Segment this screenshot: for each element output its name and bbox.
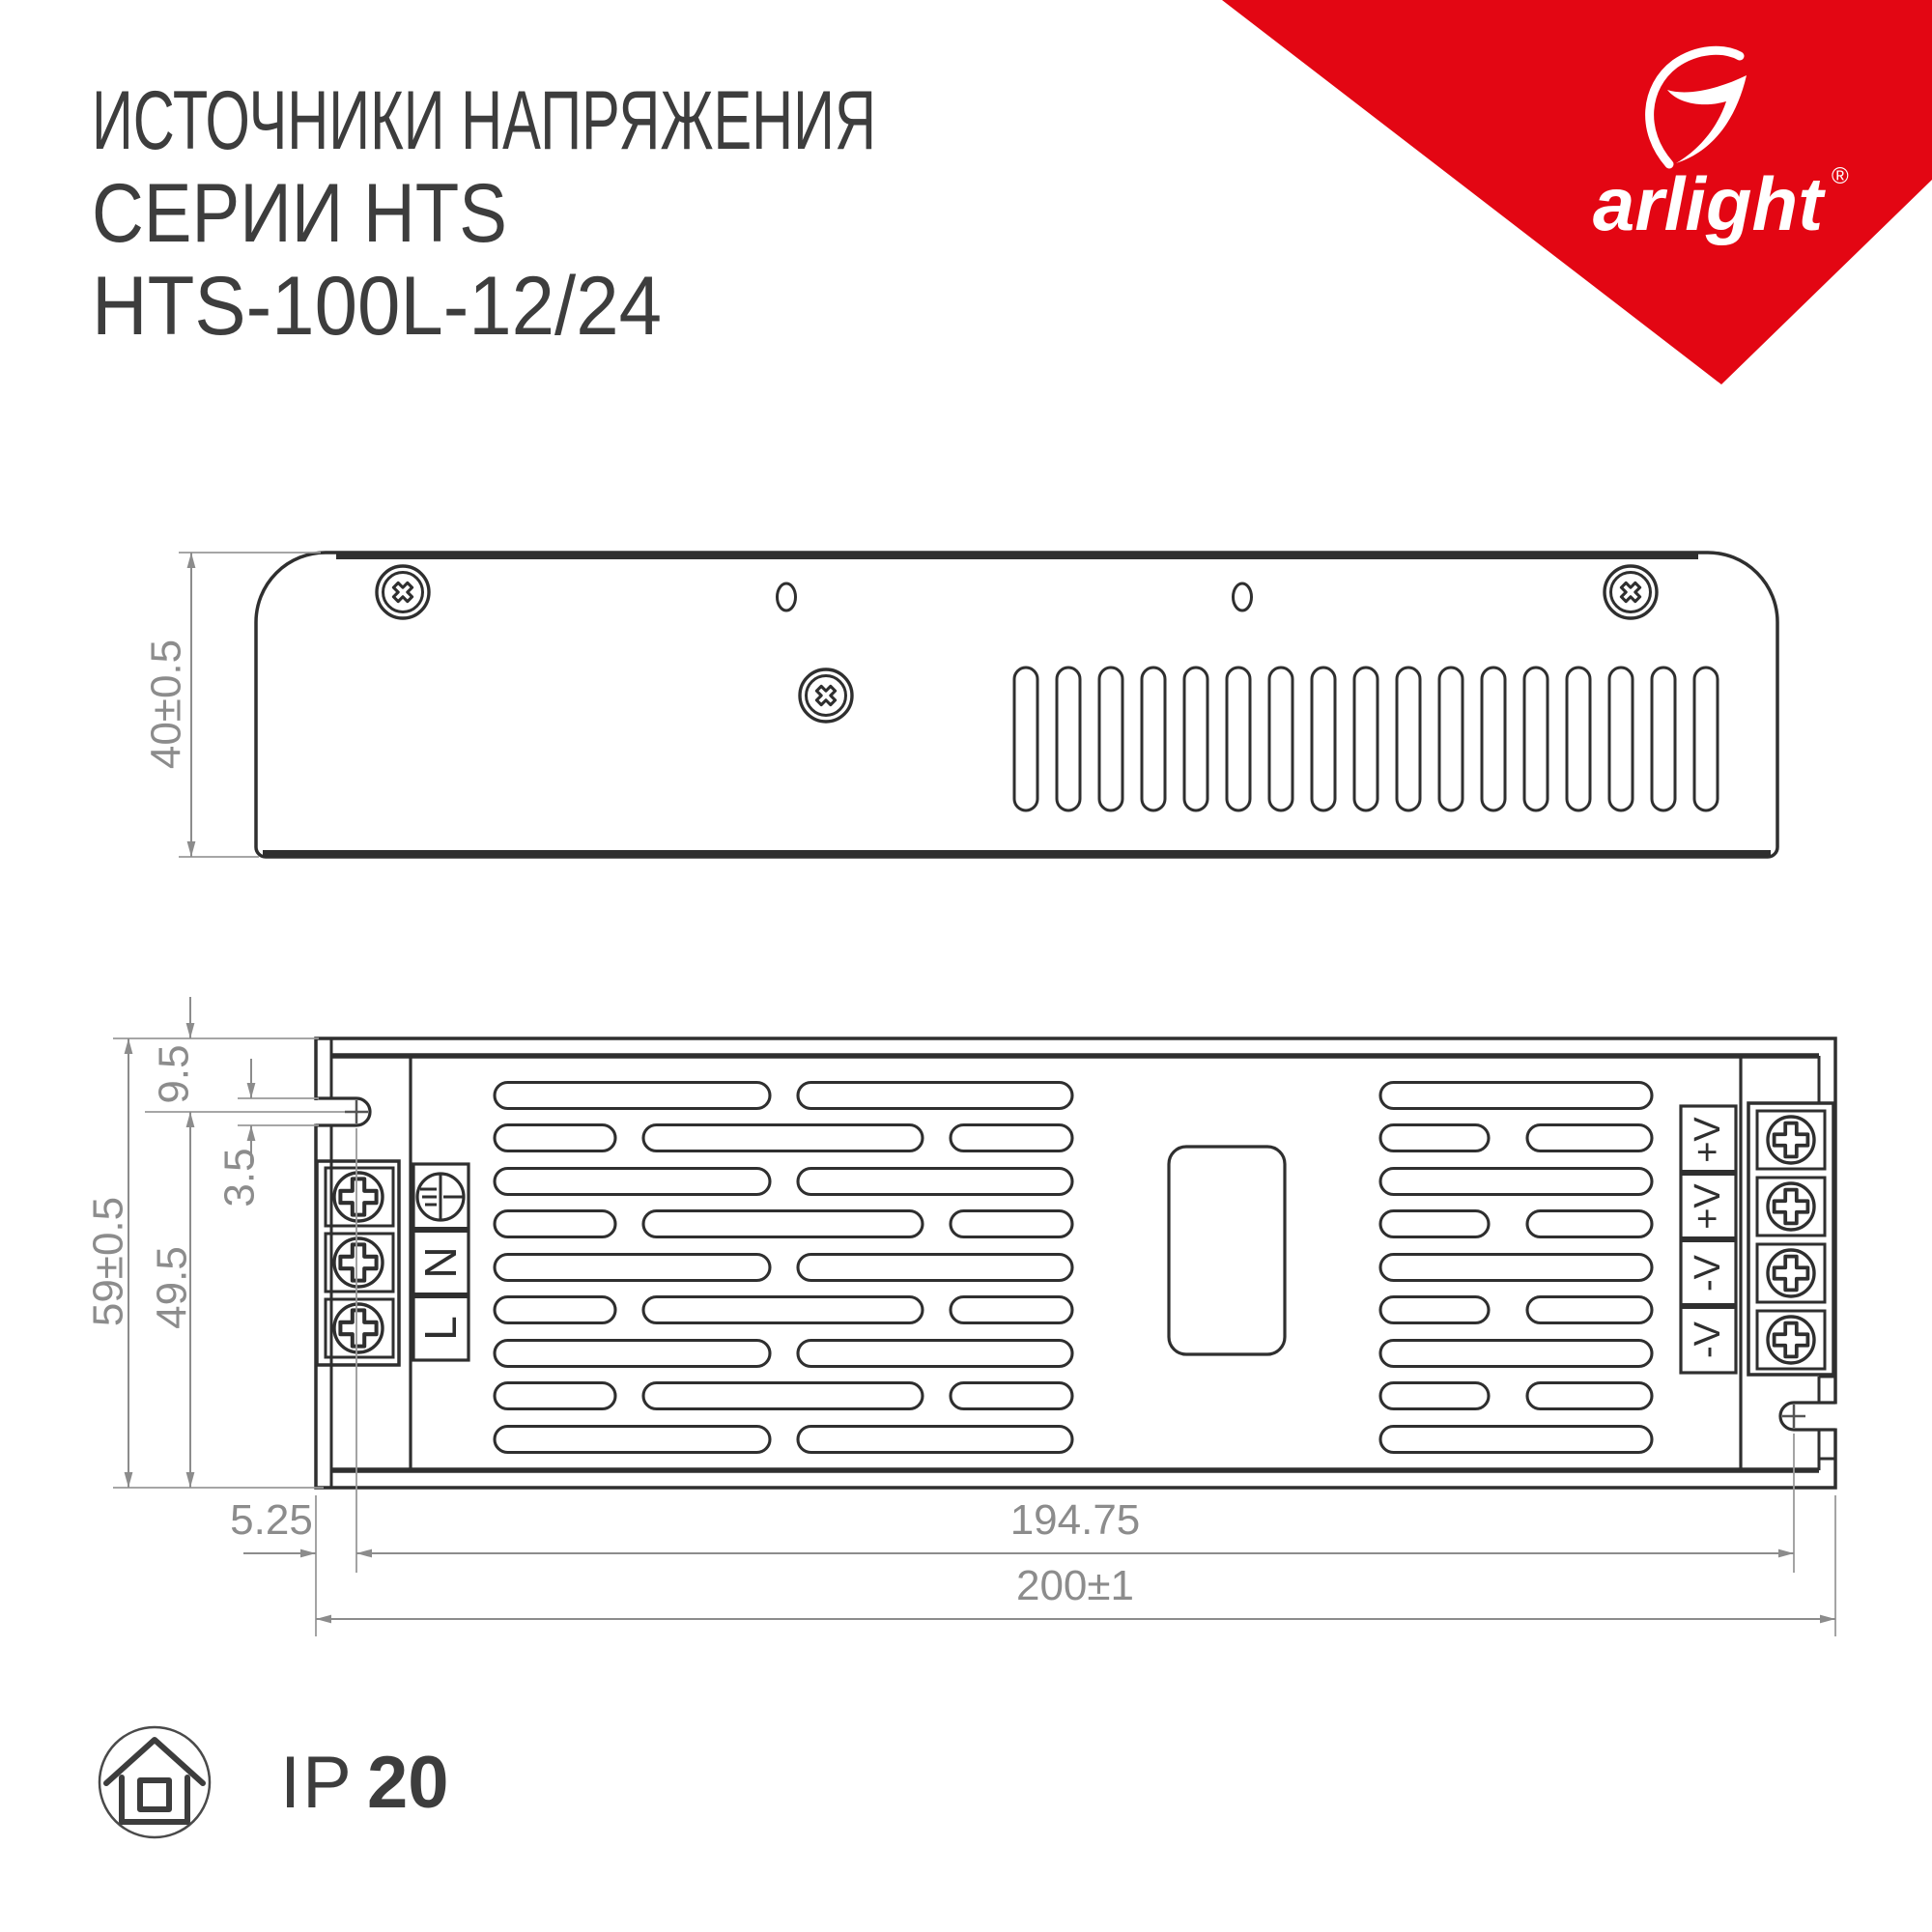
- vent-slot: [1354, 668, 1378, 810]
- top-view-screws: [377, 566, 1657, 722]
- product-label-area: [1169, 1147, 1285, 1354]
- terminal-label-l: L: [415, 1316, 466, 1341]
- vent-slot: [495, 1125, 615, 1151]
- terminal-screw-icon: [334, 1173, 383, 1221]
- top-view: 40±0.5: [143, 553, 1778, 857]
- vent-slot: [643, 1297, 923, 1323]
- vent-slot: [1380, 1125, 1489, 1151]
- brand-wordmark: arlight: [1593, 161, 1826, 246]
- terminal-label-plus-v: +V: [1688, 1117, 1728, 1163]
- terminal-label-minus-v: -V: [1688, 1254, 1728, 1292]
- vent-slot: [643, 1211, 923, 1237]
- title-line-1: ИСТОЧНИКИ НАПРЯЖЕНИЯ: [92, 74, 876, 167]
- vent-slot: [495, 1341, 770, 1367]
- vent-slot: [1380, 1297, 1489, 1323]
- vent-slot: [495, 1255, 770, 1281]
- dim-label-9-5: 9.5: [151, 1044, 198, 1103]
- vent-slot: [1142, 668, 1165, 810]
- vent-slot: [1652, 668, 1675, 810]
- screw-cross-icon: [1605, 566, 1657, 618]
- screw-plus-slot: [1775, 1323, 1808, 1357]
- brand-corner: arlight ®: [1222, 0, 1932, 384]
- vent-slot: [951, 1383, 1072, 1409]
- dim-label-59: 59±0.5: [85, 1197, 132, 1326]
- vent-slot: [1694, 668, 1718, 810]
- title-line-3: HTS-100L-12/24: [92, 260, 662, 353]
- terminal-screw-icon: [1768, 1317, 1814, 1363]
- vent-slot: [643, 1383, 923, 1409]
- terminal-label-n: N: [415, 1246, 466, 1278]
- vent-slot: [1527, 1211, 1652, 1237]
- terminal-screw-icon: [1768, 1117, 1814, 1163]
- ground-terminal-icon: [417, 1174, 464, 1220]
- vent-slot: [798, 1341, 1072, 1367]
- vent-slot: [1380, 1427, 1652, 1453]
- vent-slot: [1527, 1383, 1652, 1409]
- dim-label-49-5: 49.5: [149, 1246, 196, 1329]
- mount-hole-icon: [1234, 583, 1252, 611]
- vent-slot: [1380, 1083, 1652, 1109]
- vent-slot: [495, 1169, 770, 1195]
- screw-plus-slot: [1775, 1257, 1808, 1291]
- vent-slot: [1609, 668, 1633, 810]
- screw-plus-slot: [1775, 1123, 1808, 1157]
- dim-label-194-75: 194.75: [1010, 1496, 1141, 1544]
- vent-slot: [1524, 668, 1548, 810]
- vent-slot: [495, 1083, 770, 1109]
- screw-cross-icon: [377, 566, 429, 618]
- vent-slot: [1184, 668, 1207, 810]
- dim-label-40: 40±0.5: [143, 639, 190, 769]
- input-terminal-block: [317, 1161, 399, 1365]
- vent-slot: [643, 1125, 923, 1151]
- vent-slot: [951, 1211, 1072, 1237]
- left-keyhole-cross: [345, 1100, 368, 1123]
- dim-label-200: 200±1: [1016, 1562, 1134, 1609]
- indoor-house-icon: [106, 1740, 203, 1822]
- vent-slot: [1312, 668, 1335, 810]
- screw-plus-slot: [340, 1310, 376, 1346]
- vent-slot: [495, 1297, 615, 1323]
- dim-label-3-5: 3.5: [216, 1148, 264, 1207]
- vent-slot: [798, 1169, 1072, 1195]
- screw-x-slot: [812, 682, 840, 710]
- mount-hole-icon: [778, 583, 796, 611]
- output-terminal-block: [1748, 1103, 1833, 1375]
- screw-x-slot: [1617, 579, 1645, 607]
- screw-plus-slot: [1775, 1190, 1808, 1224]
- top-view-vent-slots: [1014, 668, 1718, 810]
- vent-slot: [1057, 668, 1080, 810]
- terminal-label-minus-v: -V: [1688, 1321, 1728, 1358]
- dim-top-view-height: 40±0.5: [143, 553, 322, 857]
- terminal-screw-icon: [334, 1304, 383, 1352]
- brand-red-triangle: [1222, 0, 1932, 384]
- vent-slot: [1380, 1211, 1489, 1237]
- vent-slot: [1397, 668, 1420, 810]
- datasheet-page: ИСТОЧНИКИ НАПРЯЖЕНИЯ СЕРИИ HTS HTS-100L-…: [0, 0, 1932, 1932]
- front-vent-slots: [495, 1083, 1652, 1453]
- vent-slot: [1014, 668, 1037, 810]
- vent-slot: [1482, 668, 1505, 810]
- vent-slot: [495, 1383, 615, 1409]
- screw-x-slot: [389, 579, 417, 607]
- slot-opening-mask: [1833, 1405, 1839, 1429]
- product-drawing-canvas: ИСТОЧНИКИ НАПРЯЖЕНИЯ СЕРИИ HTS HTS-100L-…: [0, 0, 1932, 1932]
- screw-plus-slot: [340, 1179, 376, 1214]
- vent-slot: [951, 1297, 1072, 1323]
- top-view-outline: [256, 553, 1777, 857]
- vent-slot: [1567, 668, 1590, 810]
- ip-rating-prefix: IP: [280, 1742, 354, 1824]
- terminal-screw-icon: [1768, 1250, 1814, 1296]
- vent-slot: [1527, 1125, 1652, 1151]
- vent-slot: [495, 1427, 770, 1453]
- screw-plus-slot: [340, 1244, 376, 1280]
- title-block: ИСТОЧНИКИ НАПРЯЖЕНИЯ СЕРИИ HTS HTS-100L-…: [92, 74, 876, 353]
- terminal-screw-icon: [1768, 1183, 1814, 1230]
- front-view: N L +V +V -V -V: [85, 997, 1839, 1636]
- vent-slot: [1227, 668, 1250, 810]
- vent-slot: [1269, 668, 1293, 810]
- vent-slot: [798, 1427, 1072, 1453]
- input-label-column: N L: [413, 1164, 469, 1360]
- ip-rating-badge: IP 20: [99, 1727, 449, 1837]
- vent-slot: [1099, 668, 1122, 810]
- vent-slot: [1380, 1169, 1652, 1195]
- vent-slot: [1439, 668, 1463, 810]
- right-keyhole-cross: [1782, 1405, 1805, 1428]
- vent-slot: [1527, 1297, 1652, 1323]
- terminal-screw-icon: [334, 1238, 383, 1287]
- vent-slot: [1380, 1255, 1652, 1281]
- screw-cross-icon: [800, 669, 852, 722]
- vent-slot: [1380, 1341, 1652, 1367]
- vent-slot: [798, 1255, 1072, 1281]
- vent-slot: [798, 1083, 1072, 1109]
- dim-label-5-25: 5.25: [230, 1496, 313, 1544]
- output-label-column: +V +V -V -V: [1681, 1106, 1736, 1373]
- ip-rating-value: 20: [367, 1742, 449, 1824]
- terminal-label-plus-v: +V: [1688, 1183, 1728, 1230]
- title-line-2: СЕРИИ HTS: [92, 167, 507, 260]
- brand-registered-mark: ®: [1832, 163, 1849, 189]
- vent-slot: [951, 1125, 1072, 1151]
- vent-slot: [1380, 1383, 1489, 1409]
- vent-slot: [495, 1211, 615, 1237]
